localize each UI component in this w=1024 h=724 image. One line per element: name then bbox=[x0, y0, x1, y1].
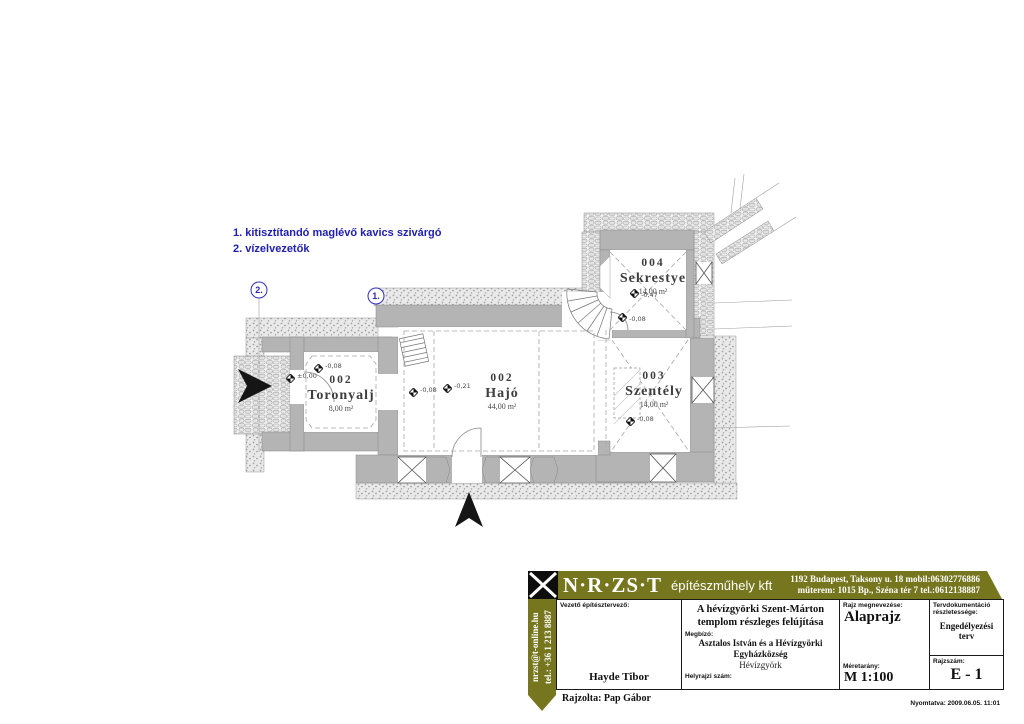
cell-lead-architect: Vezető építésztervező: Hayde Tibor bbox=[557, 600, 681, 689]
doc-detail-group: Tervdokumentáció részletessége: Engedély… bbox=[930, 600, 1003, 656]
drawing-number-label: Rajzszám: bbox=[930, 656, 1003, 665]
callout-1-label: 1. bbox=[372, 291, 380, 301]
project-title: A hévízgyörki Szent-Márton templom részl… bbox=[682, 600, 839, 629]
title-block-header: N·R·ZS·T építészműhely kft 1192 Budapest… bbox=[528, 571, 1002, 599]
doc-detail-value: Engedélyezési terv bbox=[930, 621, 1003, 641]
note-line-2: 2. vízelvezetők bbox=[233, 243, 310, 255]
doc-detail-label: Tervdokumentáció részletessége: bbox=[930, 600, 1003, 616]
parcel-number-label: Helyrajzi szám: bbox=[682, 671, 839, 680]
drawing-number-group: Rajzszám: E - 1 bbox=[930, 656, 1003, 689]
drawing-name-label: Rajz megnevezése: bbox=[840, 600, 929, 609]
contact-email: nrzst@t-online.hu bbox=[529, 599, 542, 695]
cell-project: A hévízgyörki Szent-Márton templom részl… bbox=[681, 600, 839, 689]
brand-band: N·R·ZS·T építészműhely kft 1192 Budapest… bbox=[558, 571, 1002, 599]
project-title-line-2: templom részleges felújítása bbox=[682, 616, 839, 629]
client-label: Megbízó: bbox=[682, 629, 839, 638]
company-logo bbox=[528, 571, 558, 599]
level-sekrestye-lower: -0,08 bbox=[629, 315, 646, 323]
address-line-1: 1192 Budapest, Taksony u. 18 mobil:06302… bbox=[790, 574, 980, 585]
callout-2-label: 2. bbox=[255, 285, 263, 295]
drawing-name-group: Rajz megnevezése: Alaprajz bbox=[840, 600, 929, 626]
room-toronyalj-area: 8,00 m² bbox=[329, 404, 354, 413]
cell-detail-number: Tervdokumentáció részletessége: Engedély… bbox=[929, 600, 1003, 689]
cell-drawing-name-scale: Rajz megnevezése: Alaprajz Méretarány: M… bbox=[839, 600, 929, 689]
scale-label: Méretarány: bbox=[840, 661, 929, 670]
lead-architect-name: Hayde Tibor bbox=[557, 671, 681, 683]
room-hajo-area: 44,00 m² bbox=[488, 402, 517, 411]
level-entry: ±0,00 bbox=[297, 372, 317, 380]
room-szentely-area: 14,00 m² bbox=[640, 400, 669, 409]
note-line-1: 1. kitisztítandó maglévő kavics szivárgó bbox=[233, 227, 442, 239]
client-name-line-1: Asztalos István és a Hévízgyörki bbox=[682, 638, 839, 649]
x-logo-icon bbox=[528, 571, 558, 599]
drawing-name-value: Alaprajz bbox=[840, 609, 929, 626]
room-sekrestye-area: 14,00 m² bbox=[639, 287, 668, 296]
printed-timestamp: Nyomtatva: 2009.06.05. 11:01 bbox=[910, 700, 1000, 707]
contact-phone: tel.: +36 1 213 8887 bbox=[542, 599, 555, 695]
address-line-2: műterem: 1015 Bp., Széna tér 7 tel.:0612… bbox=[790, 585, 980, 596]
level-szentely: -0,08 bbox=[637, 415, 654, 423]
room-toronyalj-name: Toronyalj bbox=[307, 388, 374, 403]
room-hajo-name: Hajó bbox=[485, 386, 519, 401]
room-sekrestye-number: 004 bbox=[641, 257, 664, 269]
contact-strip: nrzst@t-online.hu tel.: +36 1 213 8887 bbox=[528, 599, 556, 711]
company-address: 1192 Budapest, Taksony u. 18 mobil:06302… bbox=[790, 574, 980, 596]
title-block-table: Vezető építésztervező: Hayde Tibor A hév… bbox=[556, 599, 1004, 690]
title-block: N·R·ZS·T építészműhely kft 1192 Budapest… bbox=[528, 571, 1002, 711]
project-title-line-1: A hévízgyörki Szent-Márton bbox=[682, 603, 839, 616]
brand-name: N·R·ZS·T bbox=[563, 573, 662, 598]
room-hajo-number: 002 bbox=[490, 372, 513, 384]
level-tower-ne: -0,08 bbox=[325, 362, 342, 370]
callout-1: 1. bbox=[368, 288, 384, 304]
scale-value: M 1:100 bbox=[840, 670, 929, 689]
level-hajo-w: -0,08 bbox=[420, 386, 437, 394]
contact-strip-point bbox=[528, 695, 556, 711]
client-name-line-2: Egyházközség bbox=[682, 649, 839, 660]
room-szentely-name: Szentély bbox=[625, 384, 683, 399]
lead-architect-label: Vezető építésztervező: bbox=[557, 600, 681, 609]
contact-strip-band: nrzst@t-online.hu tel.: +36 1 213 8887 bbox=[528, 599, 556, 695]
drawn-by: Rajzolta: Pap Gábor bbox=[562, 693, 651, 704]
room-sekrestye-name: Sekrestye bbox=[620, 271, 686, 286]
level-hajo: -0,21 bbox=[454, 382, 471, 390]
callout-2: 2. bbox=[251, 282, 267, 298]
brand-subtitle: építészműhely kft bbox=[671, 578, 772, 593]
scale-group: Méretarány: M 1:100 bbox=[840, 661, 929, 689]
room-toronyalj-number: 002 bbox=[329, 374, 352, 386]
room-szentely-number: 003 bbox=[642, 370, 665, 382]
client-city: Hévízgyörk bbox=[682, 660, 839, 671]
drawing-number-value: E - 1 bbox=[930, 666, 1003, 684]
